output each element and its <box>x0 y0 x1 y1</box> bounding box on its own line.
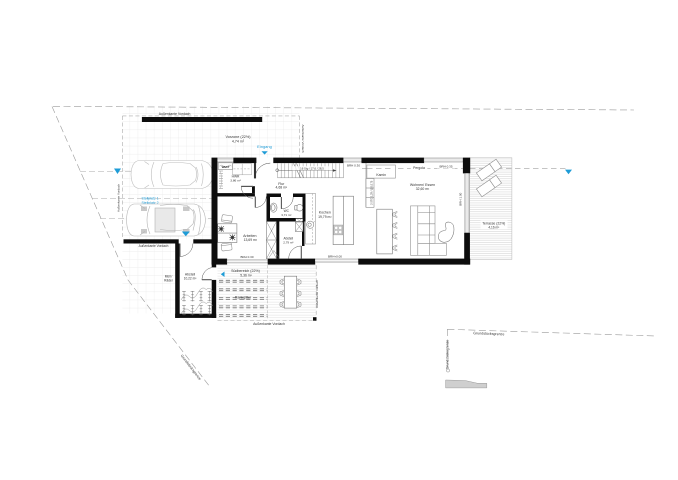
svg-text:2,79 m²: 2,79 m² <box>283 240 293 244</box>
svg-text:Vorzone (22%): Vorzone (22%) <box>225 135 251 139</box>
svg-text:5,36 m²: 5,36 m² <box>240 273 252 277</box>
svg-text:WM/T: WM/T <box>222 165 230 169</box>
svg-text:32,60 m²: 32,60 m² <box>416 187 430 191</box>
svg-text:4,68 m²: 4,68 m² <box>276 186 288 190</box>
svg-text:Pergola: Pergola <box>413 166 425 170</box>
svg-text:10,22 m²: 10,22 m² <box>184 277 197 281</box>
svg-text:Außenkante Vordach: Außenkante Vordach <box>159 112 191 116</box>
svg-text:Grundstücksgrenze: Grundstücksgrenze <box>446 340 450 370</box>
svg-text:Räder: Räder <box>164 279 174 283</box>
svg-text:3,71 m²: 3,71 m² <box>281 213 291 217</box>
svg-text:BRH 0.35: BRH 0.35 <box>439 165 452 169</box>
svg-text:Kamin: Kamin <box>376 173 386 177</box>
svg-text:Außenkante Vordach: Außenkante Vordach <box>139 244 169 248</box>
svg-text:19,79 m²: 19,79 m² <box>318 215 332 219</box>
svg-text:BRH+0.00: BRH+0.00 <box>328 255 342 259</box>
svg-text:Außenkante Vordach: Außenkante Vordach <box>301 124 305 152</box>
svg-text:BRH 0.30: BRH 0.30 <box>240 255 253 259</box>
svg-text:BRH 1.00: BRH 1.00 <box>459 192 463 205</box>
svg-text:Außenkante Vordach: Außenkante Vordach <box>315 280 319 308</box>
svg-text:Südbereich (22%): Südbereich (22%) <box>231 269 260 273</box>
svg-text:4,74 m²: 4,74 m² <box>232 140 245 144</box>
svg-text:3 STG 1,29 / (1)0,175: 3 STG 1,29 / (1)0,175 <box>370 180 373 205</box>
svg-text:Außenkante Vordach: Außenkante Vordach <box>117 184 121 212</box>
svg-text:13,69 m²: 13,69 m² <box>244 238 258 242</box>
svg-text:Außenkante Vordach: Außenkante Vordach <box>253 322 285 326</box>
svg-text:Eingang: Eingang <box>257 144 272 149</box>
svg-text:Stellplatz 1: Stellplatz 1 <box>141 196 158 200</box>
svg-text:BRH 0.30: BRH 0.30 <box>347 164 360 168</box>
svg-text:3,86 m²: 3,86 m² <box>230 178 241 182</box>
svg-text:Rankgitter: Rankgitter <box>235 295 252 299</box>
svg-text:16 Stg / 17,6 / 28,5: 16 Stg / 17,6 / 28,5 <box>300 167 324 171</box>
svg-text:4,16 m²: 4,16 m² <box>488 226 499 230</box>
